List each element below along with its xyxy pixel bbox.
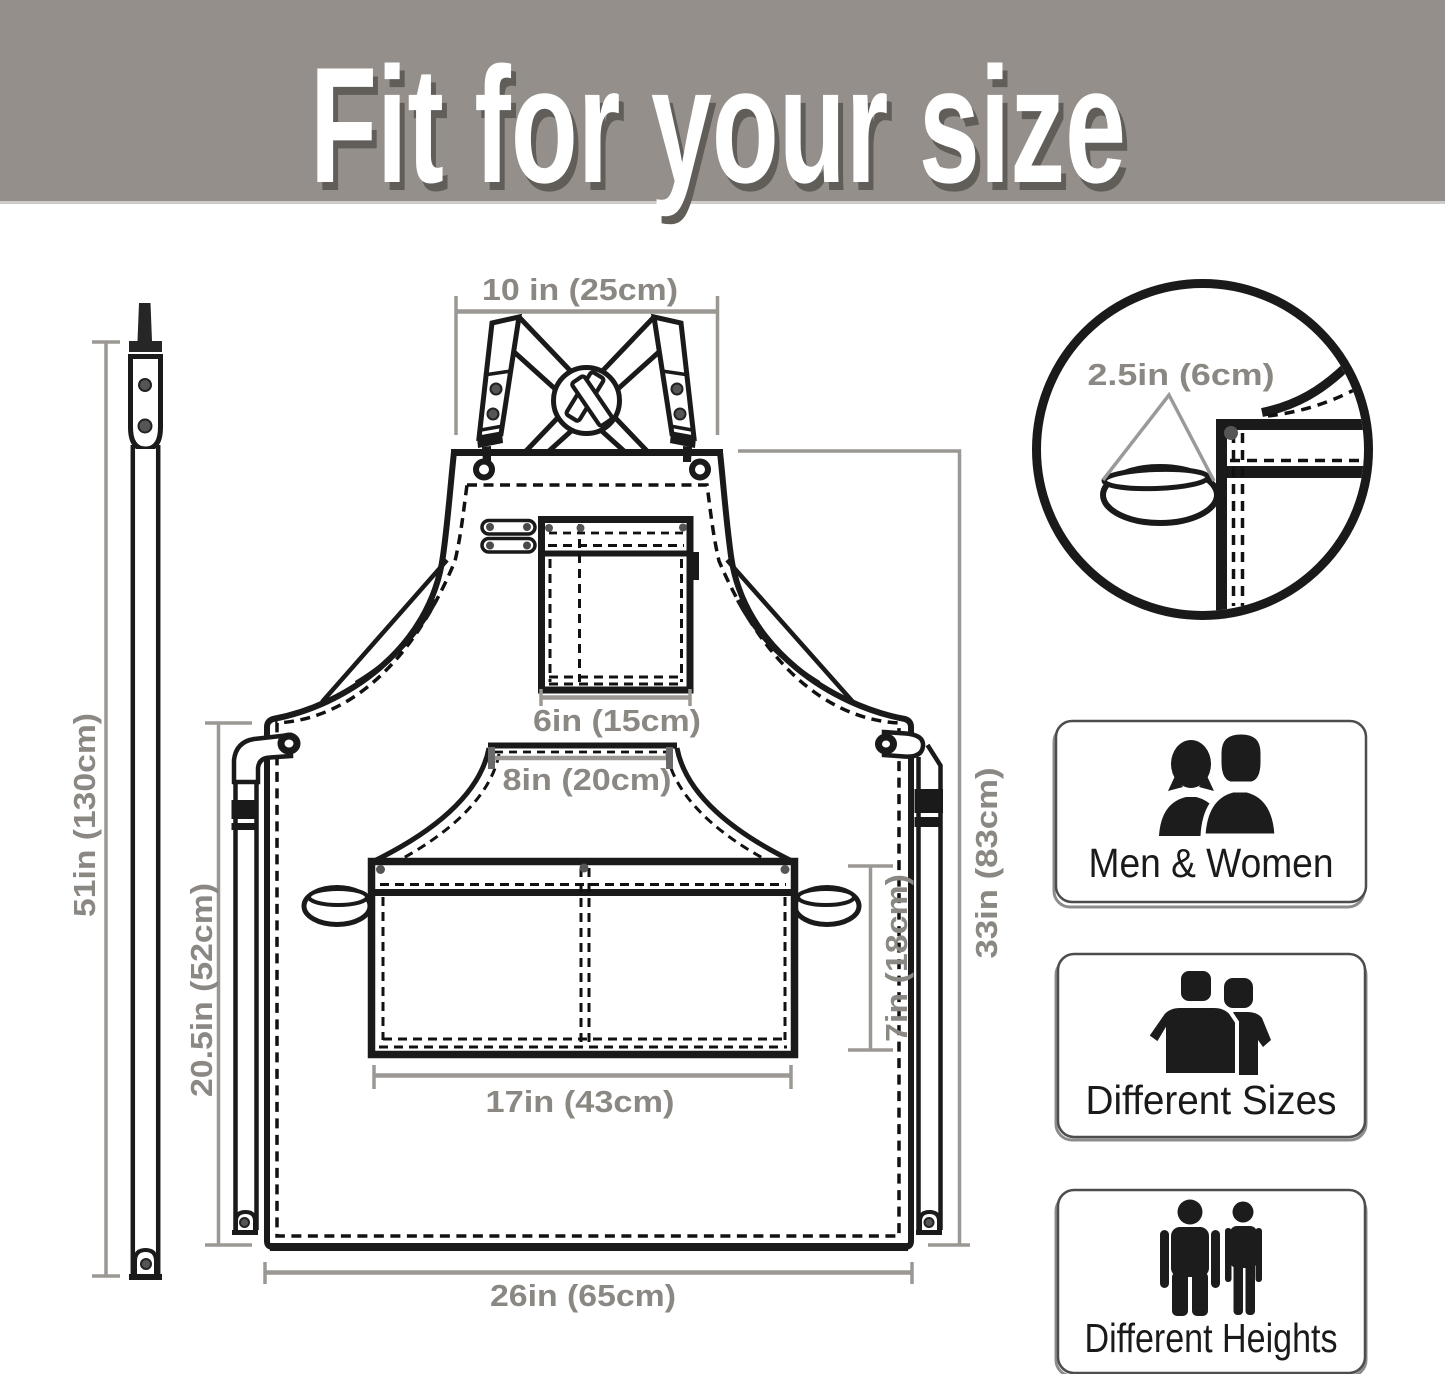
svg-text:6in (15cm): 6in (15cm) [533, 703, 701, 738]
svg-text:20.5in (52cm): 20.5in (52cm) [184, 883, 219, 1097]
svg-text:10 in (25cm): 10 in (25cm) [482, 272, 678, 307]
svg-text:Different Sizes: Different Sizes [1086, 1077, 1337, 1123]
svg-text:2.5in (6cm): 2.5in (6cm) [1088, 357, 1275, 392]
svg-text:26in (65cm): 26in (65cm) [490, 1278, 676, 1313]
svg-text:Fit for your size: Fit for your size [310, 33, 1126, 217]
svg-text:7in (18cm): 7in (18cm) [879, 874, 914, 1042]
svg-text:8in (20cm): 8in (20cm) [503, 762, 672, 797]
svg-text:33in (83cm): 33in (83cm) [969, 768, 1004, 959]
svg-text:Men & Women: Men & Women [1089, 840, 1334, 886]
svg-text:51in (130cm): 51in (130cm) [67, 713, 102, 917]
svg-text:17in (43cm): 17in (43cm) [486, 1084, 675, 1119]
svg-text:Different Heights: Different Heights [1085, 1315, 1338, 1361]
